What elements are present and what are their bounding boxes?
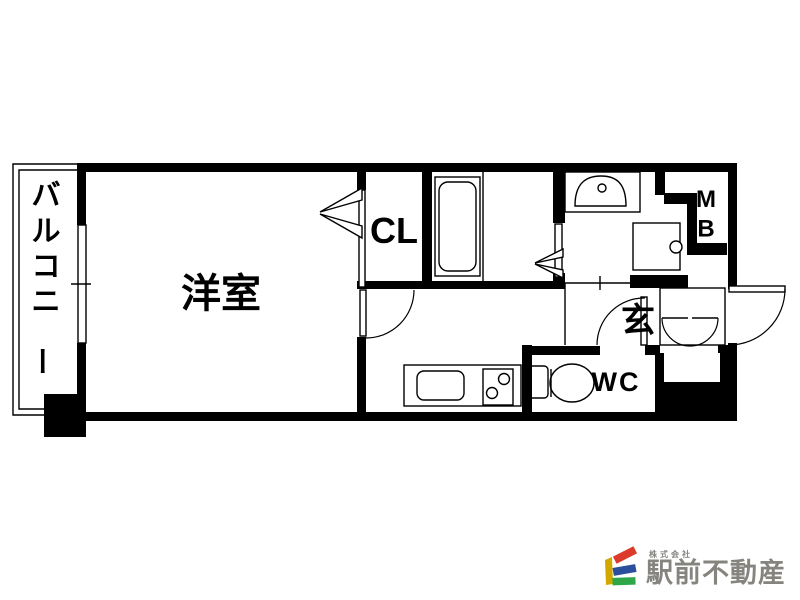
- wall-segment-room-right-upper: [357, 163, 366, 190]
- wall-segment-bath-right-upper: [553, 163, 565, 223]
- wall-segment-right-upper: [728, 163, 737, 289]
- page-background: [0, 0, 800, 600]
- floor-plan-canvas: バルコニー: [0, 0, 800, 600]
- wall-segment-bottom: [77, 412, 737, 421]
- entry-door-leaf: [729, 286, 785, 292]
- logo-bar-green: [612, 577, 635, 585]
- toilet-label: WC: [592, 367, 641, 397]
- entry-storage-niche: [664, 353, 720, 382]
- wall-segment-wc-top: [522, 346, 600, 355]
- closet-label: CL: [370, 210, 418, 251]
- wall-stub-meterbox-top: [664, 193, 688, 204]
- entrance-label: 玄: [621, 302, 655, 340]
- wall-segment-room-right-lower: [357, 337, 366, 412]
- wall-segment-wc-left: [522, 345, 532, 412]
- company-name-text: 駅前不動産: [646, 557, 786, 588]
- wall-segment-entrance-top: [630, 275, 688, 288]
- door-leaf: [360, 290, 366, 336]
- western-room-label: 洋室: [181, 272, 261, 316]
- wall-segment-left-upper: [77, 163, 86, 225]
- drain-icon: [670, 241, 682, 253]
- pillar-bottom-left: [44, 394, 86, 437]
- wall-segment-room-bottom: [357, 281, 565, 289]
- wall-stub-washroom: [655, 172, 665, 195]
- wall-segment-closet-right: [422, 163, 432, 289]
- wall-segment-top: [77, 163, 737, 172]
- logo-bar-yellow: [605, 557, 613, 585]
- wall-segment-meterbox-bottom: [687, 243, 727, 255]
